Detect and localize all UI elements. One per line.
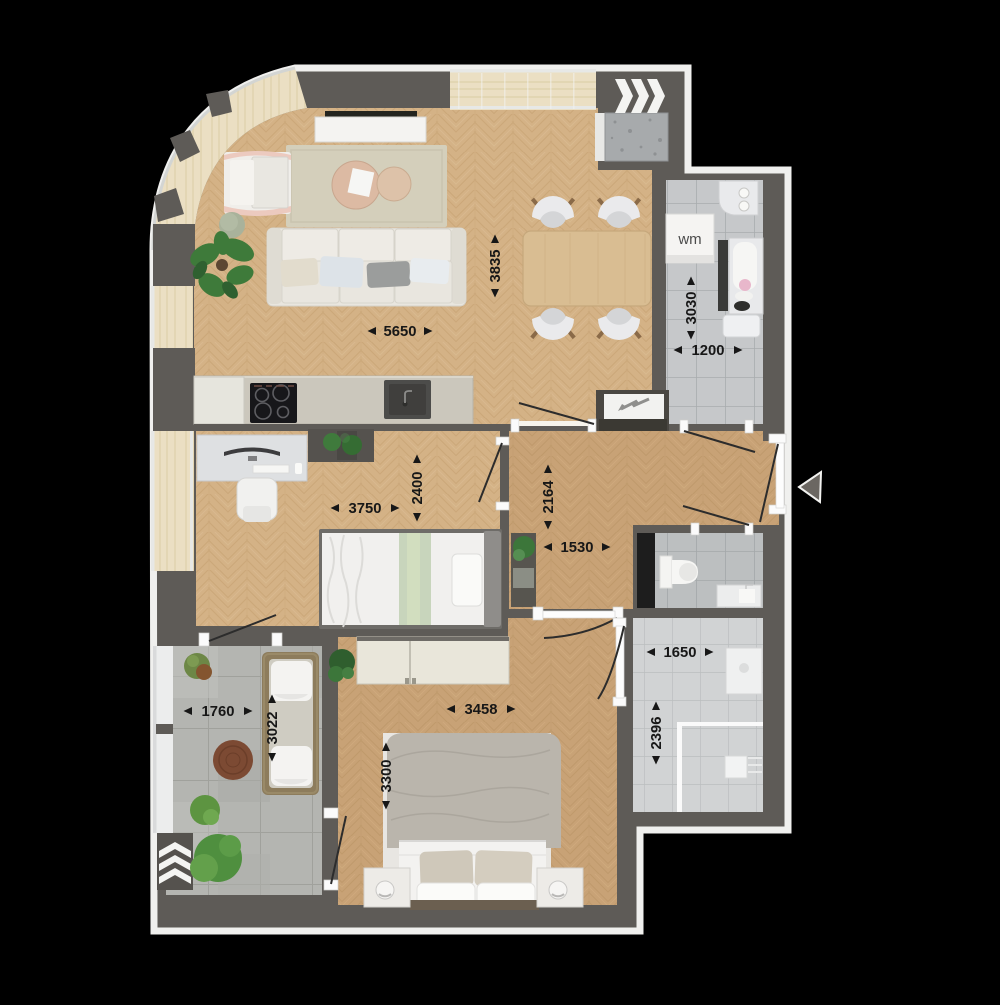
- svg-text:wm: wm: [677, 231, 701, 248]
- svg-text:5650: 5650: [384, 324, 417, 340]
- svg-text:2164: 2164: [541, 480, 557, 514]
- svg-text:2400: 2400: [410, 472, 426, 505]
- svg-text:3750: 3750: [349, 501, 382, 517]
- svg-text:3030: 3030: [684, 292, 700, 325]
- svg-text:3300: 3300: [379, 760, 395, 793]
- svg-text:1530: 1530: [561, 540, 594, 556]
- svg-text:3835: 3835: [488, 250, 504, 283]
- svg-text:1760: 1760: [202, 704, 235, 720]
- svg-text:1200: 1200: [692, 343, 725, 359]
- svg-text:3022: 3022: [265, 712, 281, 745]
- svg-text:3458: 3458: [465, 702, 498, 718]
- svg-text:2396: 2396: [649, 717, 665, 750]
- svg-text:1650: 1650: [664, 645, 697, 661]
